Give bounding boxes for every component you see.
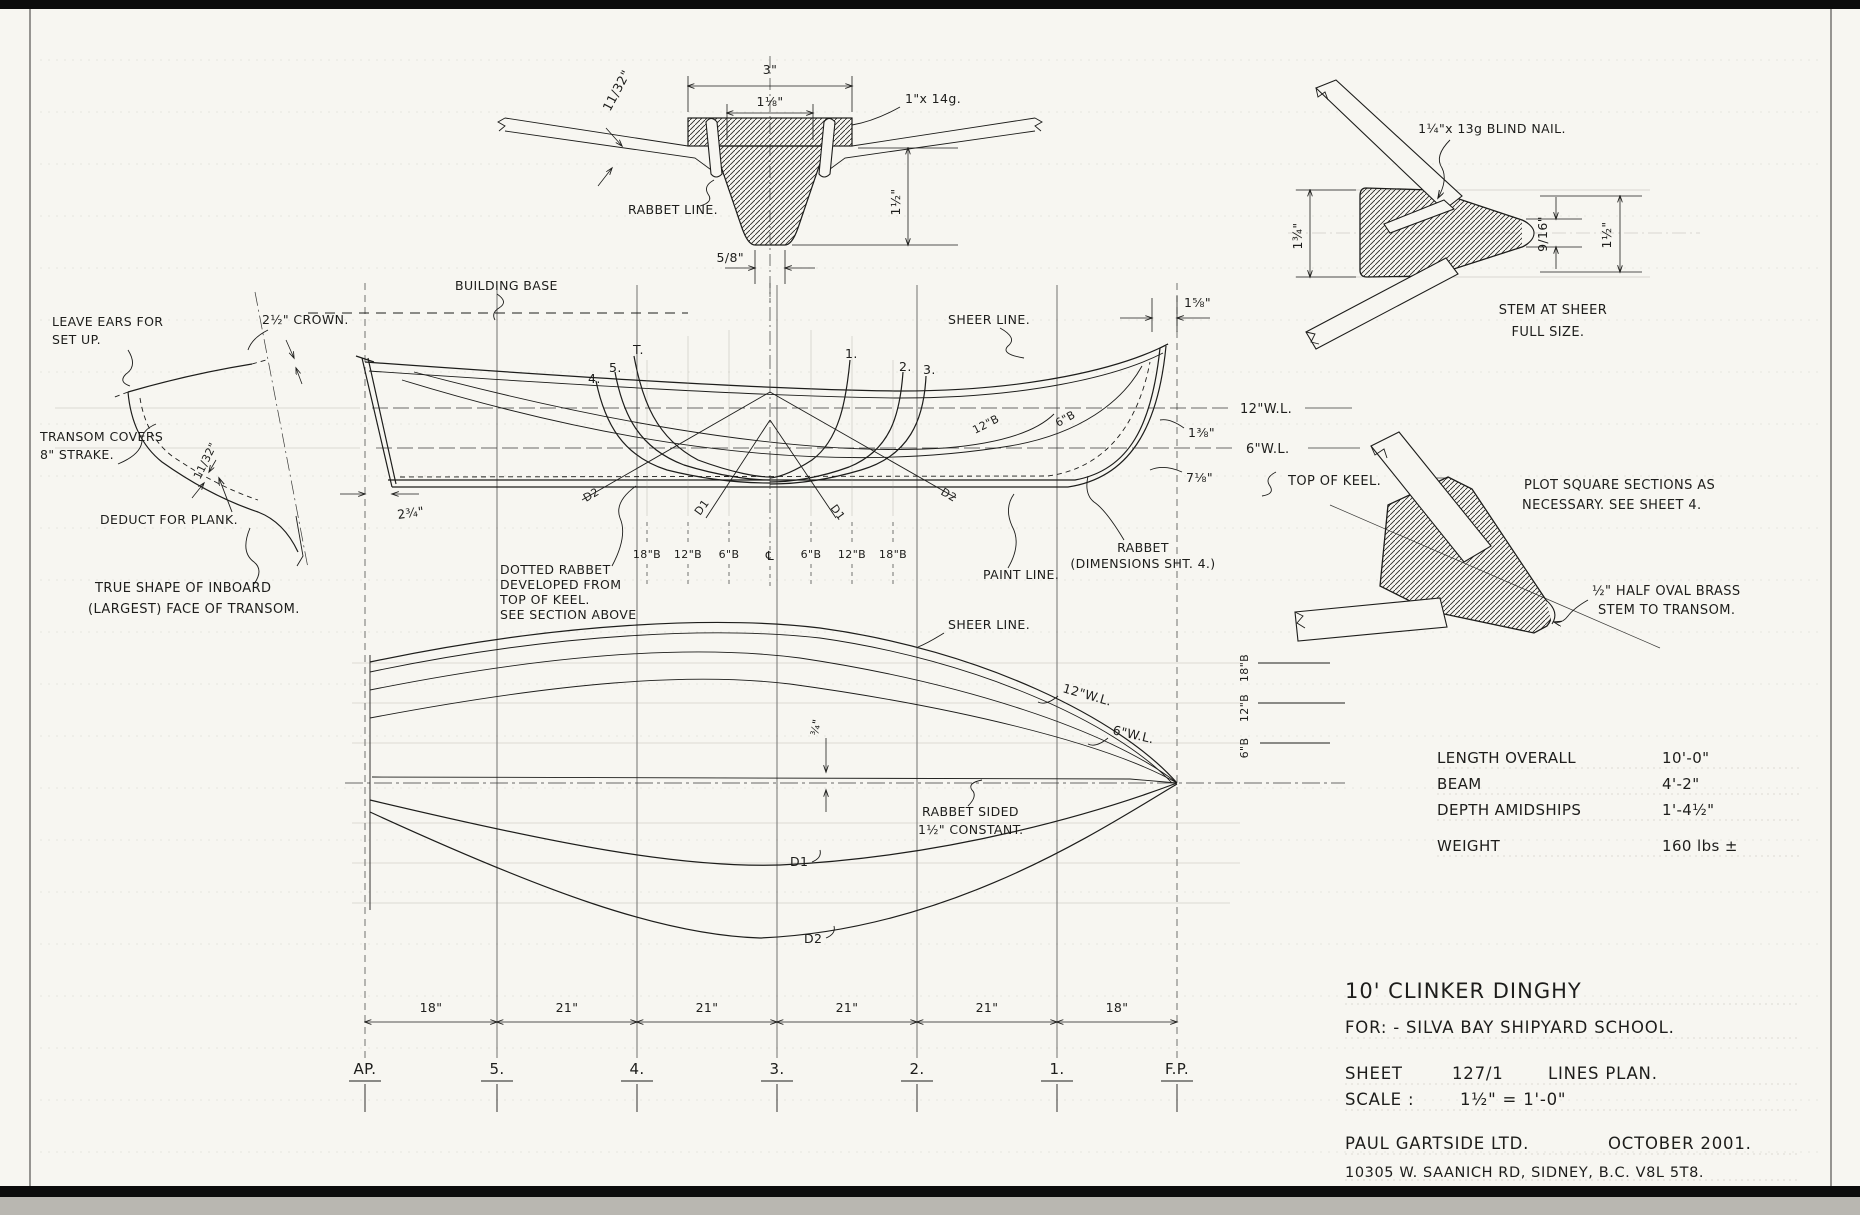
transom-ears-note-1: LEAVE EARS FOR: [52, 314, 163, 329]
stem-caption-2: FULL SIZE.: [1512, 325, 1585, 340]
drawing-sheet: 3" 1⅛" 1"x 14g. 11/32" RABBET LINE. 5/8"…: [0, 0, 1860, 1215]
dim-keel-fwd: 7⅛": [1186, 470, 1213, 485]
particular-label-depth: DEPTH AMIDSHIPS: [1437, 801, 1581, 819]
spacing-0: 18": [420, 1000, 443, 1015]
transom-covers-note-1: TRANSOM COVERS: [39, 429, 163, 444]
grid-label-2: 6"B: [719, 548, 740, 561]
section-label-1: 1.: [845, 346, 858, 361]
grid-label-0: 18"B: [633, 548, 661, 561]
stem-plan-note-1: PLOT SQUARE SECTIONS AS: [1524, 478, 1715, 493]
rabbet-note-2: (DIMENSIONS SHT. 4.): [1070, 556, 1215, 571]
plan-sheer-label: SHEER LINE.: [948, 617, 1030, 632]
transom-deduct-note: DEDUCT FOR PLANK.: [100, 512, 238, 527]
scale-value: 1½" = 1'-0": [1460, 1090, 1566, 1109]
top-of-keel-label: TOP OF KEEL.: [1287, 474, 1381, 489]
spacing-5: 18": [1106, 1000, 1129, 1015]
dotted-rabbet-note-3: TOP OF KEEL.: [499, 592, 590, 607]
spacing-2: 21": [696, 1000, 719, 1015]
dim-sheer-fwd: 1⅜": [1188, 425, 1215, 440]
lines-plan-drawing: 3" 1⅛" 1"x 14g. 11/32" RABBET LINE. 5/8"…: [0, 0, 1860, 1215]
station-label-ap: AP.: [354, 1060, 377, 1078]
particular-label-weight: WEIGHT: [1437, 837, 1501, 855]
scale-label-18b: 18"B: [1238, 654, 1251, 682]
particular-value-depth: 1'-4½": [1662, 801, 1714, 819]
plan-rabbet-note-1: RABBET SIDED: [922, 804, 1019, 819]
stem-plan-note-4: STEM TO TRANSOM.: [1598, 603, 1735, 618]
station-label-fp: F.P.: [1165, 1060, 1189, 1078]
profile-sheer-label: SHEER LINE.: [948, 312, 1030, 327]
particular-value-beam: 4'-2": [1662, 775, 1700, 793]
stem-plan-note-3: ½" HALF OVAL BRASS: [1592, 584, 1741, 599]
drawing-client: FOR: - SILVA BAY SHIPYARD SCHOOL.: [1345, 1018, 1675, 1037]
scale-label-6b: 6"B: [1238, 738, 1251, 759]
keel-fastening-note: 1"x 14g.: [905, 91, 961, 106]
station-label-2: 2.: [909, 1060, 924, 1078]
grid-label-centerline: ℄: [765, 548, 774, 563]
stem-dim-left: 1¾": [1290, 222, 1305, 249]
company-address: 10305 W. SAANICH RD, SIDNEY, B.C. V8L 5T…: [1345, 1165, 1704, 1181]
dotted-rabbet-note-4: SEE SECTION ABOVE: [500, 607, 637, 622]
transom-caption-2: (LARGEST) FACE OF TRANSOM.: [88, 602, 300, 617]
station-label-3: 3.: [769, 1060, 784, 1078]
stem-head-dim: 1⅝": [1184, 295, 1211, 310]
sheet-number: 127/1: [1452, 1064, 1504, 1083]
profile-wl12-label: 12"W.L.: [1240, 402, 1292, 417]
spacing-1: 21": [556, 1000, 579, 1015]
station-label-1: 1.: [1049, 1060, 1064, 1078]
company-name: PAUL GARTSIDE LTD.: [1345, 1134, 1529, 1153]
keel-dim-depth: 1½": [888, 188, 903, 215]
spacing-4: 21": [976, 1000, 999, 1015]
scale-label: SCALE :: [1345, 1090, 1414, 1109]
stem-nail-note: 1¼"x 13g BLIND NAIL.: [1418, 121, 1566, 136]
transom-ears-note-2: SET UP.: [52, 332, 101, 347]
particular-label-beam: BEAM: [1437, 775, 1482, 793]
section-label-T: T.: [632, 342, 644, 357]
transom-covers-note-2: 8" STRAKE.: [40, 447, 114, 462]
station-label-4: 4.: [629, 1060, 644, 1078]
spacing-3: 21": [836, 1000, 859, 1015]
grid-label-4: 6"B: [801, 548, 822, 561]
particular-label-loa: LENGTH OVERALL: [1437, 749, 1576, 767]
particular-value-loa: 10'-0": [1662, 749, 1709, 767]
grid-label-5: 12"B: [838, 548, 866, 561]
dotted-rabbet-note-2: DEVELOPED FROM: [500, 577, 621, 592]
section-label-4: 4.: [588, 371, 601, 386]
plan-rabbet-note-2: 1½" CONSTANT.: [918, 822, 1024, 837]
profile-wl6-label: 6"W.L.: [1246, 442, 1290, 457]
grid-label-1: 12"B: [674, 548, 702, 561]
stem-plan-note-2: NECESSARY. SEE SHEET 4.: [1522, 498, 1702, 513]
dotted-rabbet-note-1: DOTTED RABBET: [500, 562, 611, 577]
plan-d2-label: D2: [804, 931, 822, 946]
drawing-title: 10' CLINKER DINGHY: [1345, 979, 1582, 1003]
keel-dim-bottom: 5/8": [717, 250, 744, 265]
grid-label-6: 18"B: [879, 548, 907, 561]
keel-dim-inner: 1⅛": [756, 94, 783, 109]
drawing-date: OCTOBER 2001.: [1608, 1134, 1752, 1153]
scale-label-12b: 12"B: [1238, 694, 1251, 722]
particular-value-weight: 160 lbs ±: [1662, 837, 1738, 855]
section-label-3: 3.: [923, 362, 936, 377]
sheet-label: SHEET: [1345, 1064, 1403, 1083]
transom-crown-dim: 2½" CROWN.: [262, 312, 349, 327]
section-label-2: 2.: [899, 359, 912, 374]
keel-dim-top: 3": [763, 62, 778, 77]
stem-caption-1: STEM AT SHEER: [1499, 303, 1607, 318]
section-label-5: 5.: [609, 360, 622, 375]
stem-dim-nose: 9/16": [1535, 216, 1550, 252]
sheet-title: LINES PLAN.: [1548, 1064, 1658, 1083]
paint-line-label: PAINT LINE.: [983, 567, 1059, 582]
transom-caption-1: TRUE SHAPE OF INBOARD: [94, 581, 271, 596]
plan-d1-label: D1: [790, 854, 808, 869]
station-label-5: 5.: [489, 1060, 504, 1078]
building-base-label: BUILDING BASE: [455, 278, 558, 293]
stem-dim-right: 1½": [1599, 221, 1614, 248]
rabbet-note-1: RABBET: [1117, 540, 1169, 555]
